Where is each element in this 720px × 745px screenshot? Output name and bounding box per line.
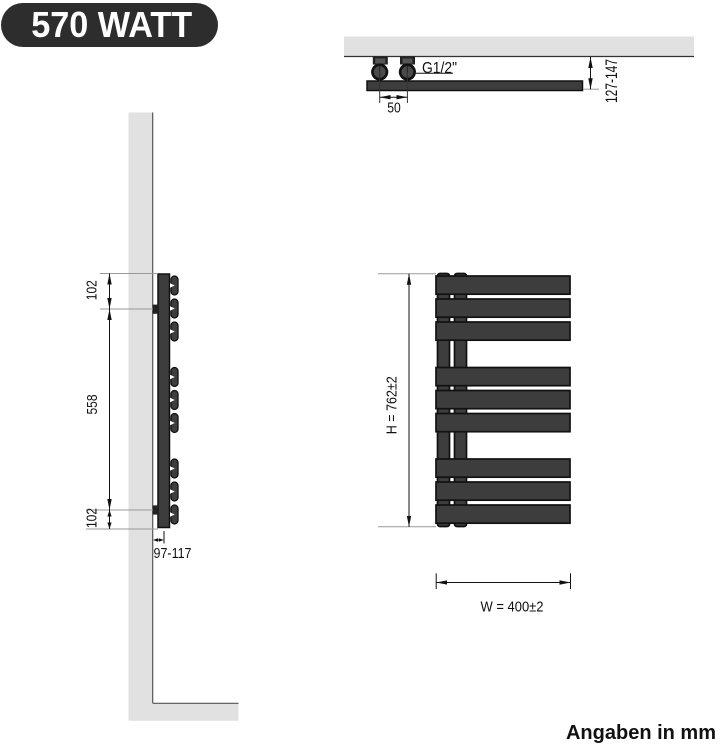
svg-text:H = 762±2: H = 762±2	[384, 376, 400, 434]
svg-text:558: 558	[85, 395, 101, 415]
svg-text:102: 102	[85, 508, 101, 528]
svg-text:102: 102	[85, 280, 101, 300]
svg-text:50: 50	[387, 101, 401, 117]
svg-text:97-117: 97-117	[154, 546, 192, 562]
svg-text:570 WATT: 570 WATT	[31, 4, 192, 45]
svg-text:W = 400±2: W = 400±2	[481, 600, 544, 616]
svg-text:Angaben in mm: Angaben in mm	[566, 722, 716, 744]
svg-text:G1/2": G1/2"	[422, 60, 457, 77]
svg-text:127-147: 127-147	[603, 59, 621, 103]
